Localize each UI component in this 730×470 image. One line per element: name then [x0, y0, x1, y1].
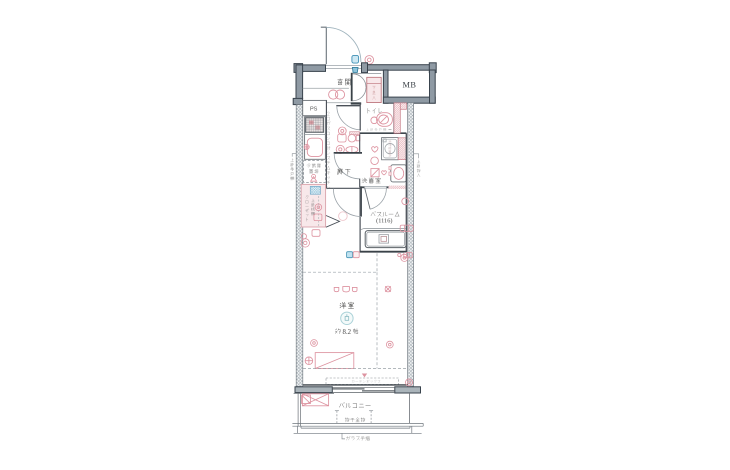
svg-text:MB: MB — [402, 81, 416, 90]
svg-text:8.2: 8.2 — [343, 329, 352, 336]
svg-text:PS: PS — [310, 107, 318, 113]
svg-text:(1116): (1116) — [376, 217, 392, 224]
